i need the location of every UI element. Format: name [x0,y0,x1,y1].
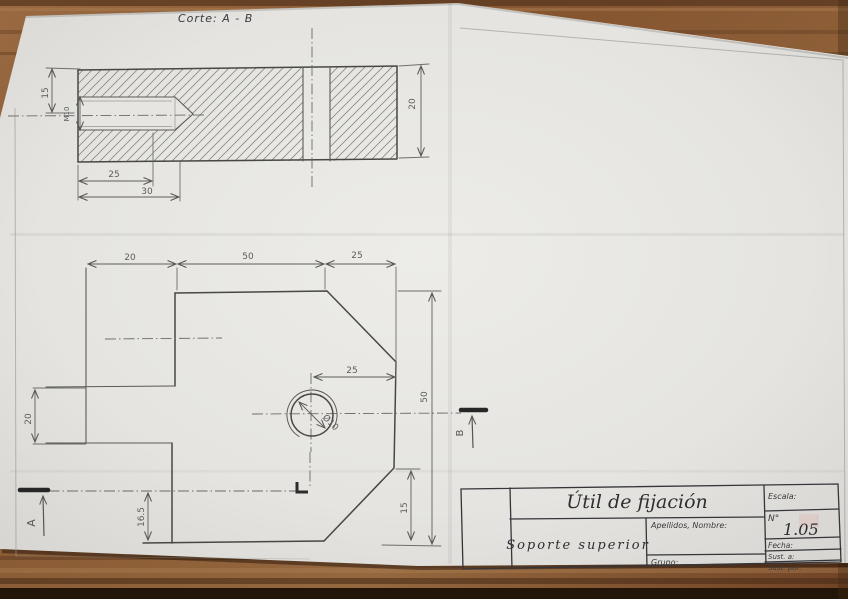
dim-section-height: 20 [408,98,418,110]
replaces-label: Sust. a: [768,553,794,561]
cut-marker-b-label: B [455,429,466,436]
drawing-canvas: Corte: A - B 15 [0,0,848,599]
dim-thread-depth: 25 [108,170,119,180]
dim-drill-depth: 30 [141,187,153,197]
photo-of-technical-drawing: Corte: A - B 15 [0,0,848,599]
dim-hole-to-edge: 25 [346,366,357,376]
replaced-by-label: Sust. por: [768,564,802,572]
vertical-crease [448,4,452,564]
group-label: Grupo: [651,558,679,567]
dim-top-left: 20 [124,253,136,263]
horizontal-crease-1 [10,233,844,236]
dim-thread: M10 [63,107,71,122]
number-value: 1.05 [783,520,819,539]
date-label: Fecha: [768,541,793,550]
number-label: N° [768,514,779,524]
drawing-title: Útil de fijación [566,490,708,513]
hatch-right [330,66,397,161]
dim-chamfer-height: 15 [400,502,410,513]
scale-label: Escala: [768,492,797,501]
dim-thickness: 15 [41,87,51,98]
dim-top-mid: 50 [242,252,254,262]
section-title-label: Corte: A - B [178,12,253,25]
dim-bottom-offset: 16.5 [137,507,147,527]
part-name: Soporte superior [506,538,650,553]
threaded-hole-bore [78,97,175,130]
dim-tab-height: 20 [24,413,34,425]
cut-marker-a-label: A [25,519,38,527]
dim-top-right: 25 [351,251,362,261]
names-label: Apellidos, Nombre: [650,521,727,530]
horizontal-crease-2 [10,470,844,473]
dim-total-height: 50 [420,391,430,403]
